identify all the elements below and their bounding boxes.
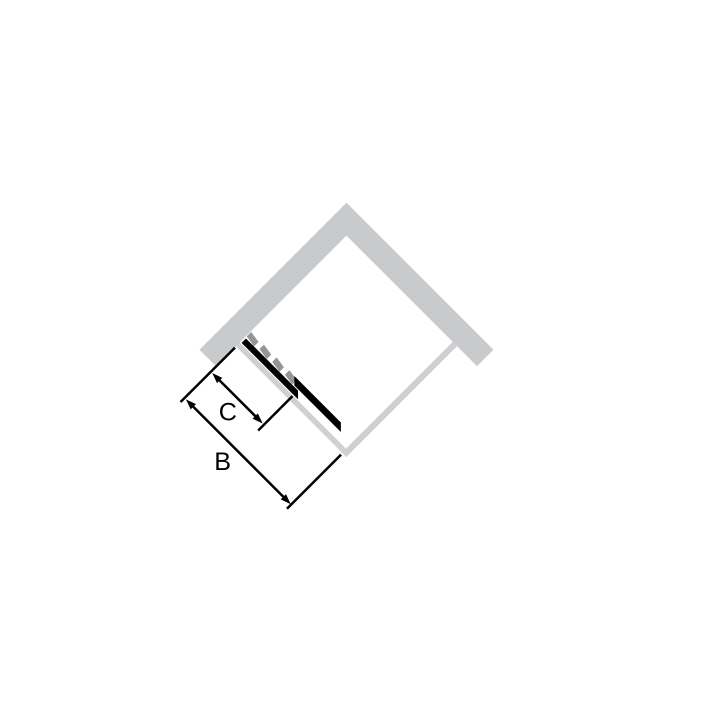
svg-text:C: C (219, 399, 237, 427)
svg-text:B: B (214, 448, 231, 476)
